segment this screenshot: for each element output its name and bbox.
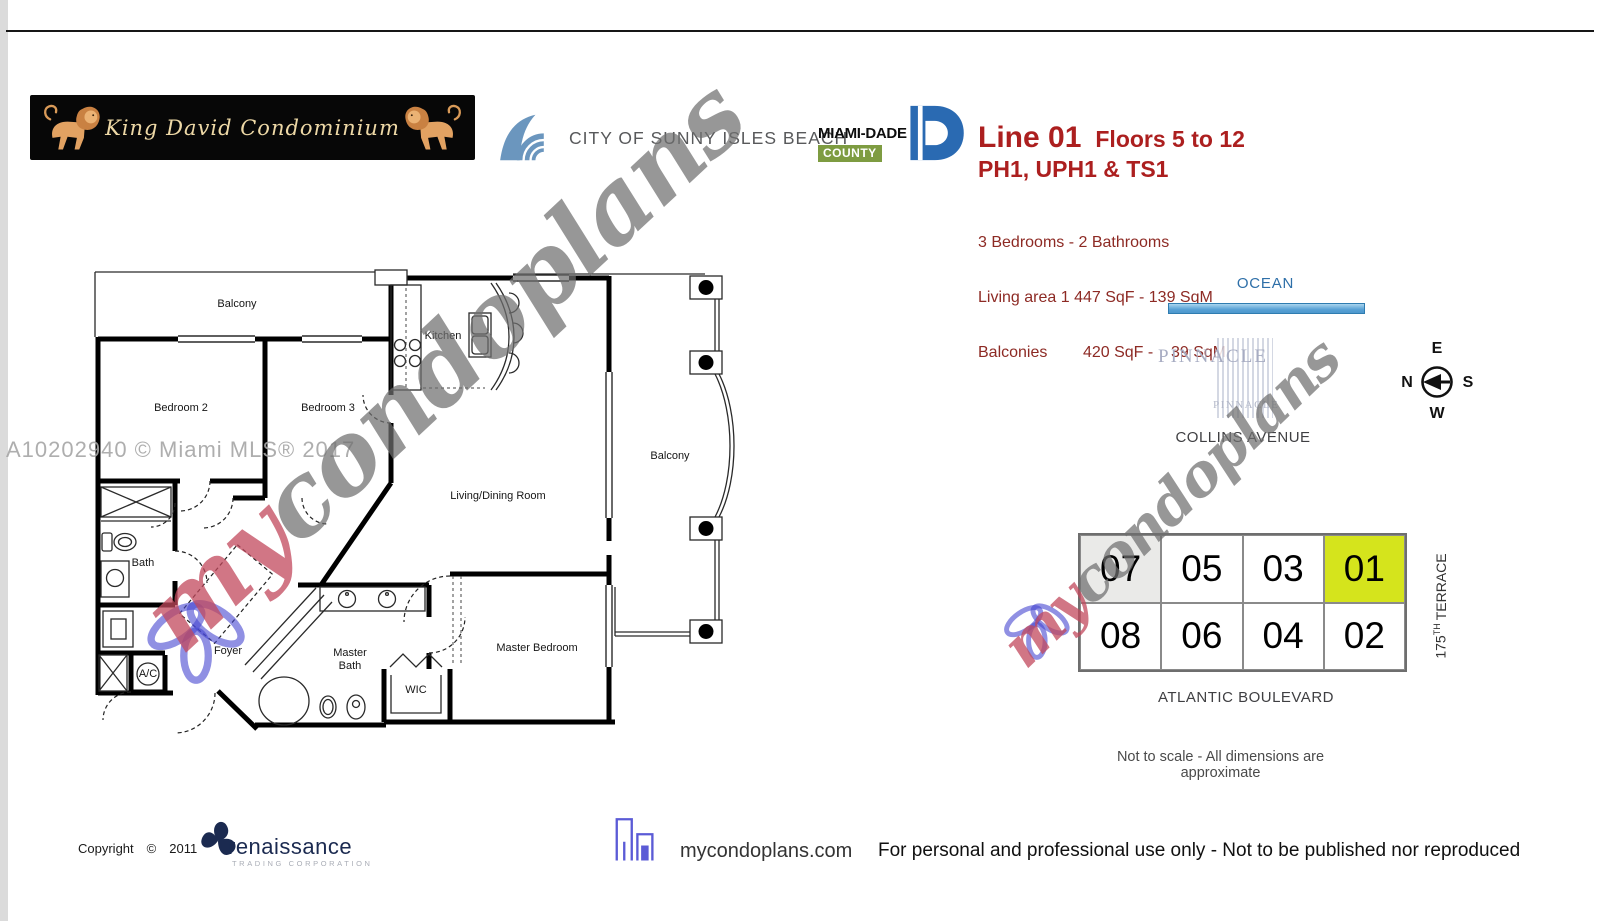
renaissance-subtitle: TRADING CORPORATION <box>232 859 373 868</box>
room-label-master-bath-2: Bath <box>339 660 362 672</box>
compass-icon: E N S W <box>1397 337 1477 422</box>
mycondoplans-site: mycondoplans.com <box>680 840 852 863</box>
room-label-wic: WIC <box>405 684 426 696</box>
unit-cell-06: 06 <box>1161 603 1242 671</box>
unit-cell-01-highlighted: 01 <box>1324 535 1405 603</box>
floors-range: Floors 5 to 12 <box>1095 126 1245 152</box>
room-label-ac: A/C <box>139 668 157 680</box>
copyright-line: Copyright©2011 <box>78 841 210 856</box>
renaissance-name: renaissance <box>228 834 352 860</box>
room-label-balcony-right: Balcony <box>650 450 690 462</box>
room-label-master-bedroom: Master Bedroom <box>496 642 577 654</box>
unit-cell-04: 04 <box>1243 603 1324 671</box>
compass-s: S <box>1463 374 1474 391</box>
room-label-master-bath-1: Master <box>333 647 367 659</box>
street-atlantic-boulevard: ATLANTIC BOULEVARD <box>1156 689 1336 706</box>
room-label-kitchen: Kitchen <box>425 330 462 342</box>
unit-cell-07: 07 <box>1080 535 1161 603</box>
city-logo: CITY OF SUNNY ISLES BEACH <box>497 112 848 164</box>
mls-watermark: A10202940 © Miami MLS® 2017 <box>6 437 355 463</box>
lion-icon <box>42 101 106 155</box>
copyright-year: 2011 <box>169 841 197 856</box>
unit-cell-03: 03 <box>1243 535 1324 603</box>
terrace-name: TERRACE <box>1433 553 1449 620</box>
top-border-line <box>6 30 1594 32</box>
wave-icon <box>497 112 559 164</box>
pinnacle-name: PINNACLE <box>1158 346 1268 368</box>
copyright-label: Copyright <box>78 841 134 856</box>
brand-trefoil-icon <box>996 598 1081 664</box>
city-name: CITY OF SUNNY ISLES BEACH <box>569 128 848 149</box>
room-label-balcony-top: Balcony <box>217 298 257 310</box>
room-label-foyer: Foyer <box>214 645 242 657</box>
county-name: MIAMI-DADE <box>818 125 907 142</box>
unit-cell-05: 05 <box>1161 535 1242 603</box>
floor-plan: Balcony Bedroom 2 Bedroom 3 Kitchen Livi… <box>85 255 745 755</box>
room-label-bath: Bath <box>132 557 155 569</box>
street-collins-avenue: COLLINS AVENUE <box>1158 429 1328 446</box>
lion-icon <box>399 101 463 155</box>
windows <box>178 275 612 667</box>
compass-n: N <box>1401 374 1413 391</box>
pinnacle-logo: PINNACLE PINNACLE <box>1158 338 1273 418</box>
ocean-label: OCEAN <box>1168 275 1363 292</box>
floorplan-sheet: King David Condominium CITY OF SUNNY ISL… <box>0 0 1600 921</box>
compass-w: W <box>1429 405 1445 422</box>
unit-cell-02: 02 <box>1324 603 1405 671</box>
penthouse-line: PH1, UPH1 & TS1 <box>978 156 1278 183</box>
county-logo: MIAMI-DADE COUNTY <box>818 104 967 162</box>
compass-e: E <box>1432 340 1443 357</box>
building-name: King David Condominium <box>105 116 400 140</box>
room-label-bedroom2: Bedroom 2 <box>154 402 208 414</box>
bath-fixtures <box>99 487 171 691</box>
terrace-ordinal: TH <box>1432 623 1442 635</box>
county-sub-label: COUNTY <box>818 145 882 162</box>
ocean-bar <box>1168 303 1365 314</box>
unit-cell-08: 08 <box>1080 603 1161 671</box>
pinnacle-name-small: PINNACLE <box>1213 399 1279 411</box>
line-number: Line 01 <box>978 121 1081 154</box>
bedrooms-bathrooms: 3 Bedrooms - 2 Bathrooms <box>978 234 1278 252</box>
room-label-living: Living/Dining Room <box>450 490 545 502</box>
usage-disclaimer: For personal and professional use only -… <box>878 840 1520 862</box>
miami-dade-d-icon <box>910 104 967 162</box>
scale-note: Not to scale - All dimensions are approx… <box>1078 749 1363 781</box>
mycondoplans-buildings-icon <box>613 813 673 863</box>
street-175th-terrace: 175THTERRACE <box>1432 540 1450 672</box>
unit-grid: 07 05 03 01 08 06 04 02 <box>1078 533 1407 672</box>
building-banner: King David Condominium <box>30 95 475 160</box>
terrace-number: 175 <box>1433 635 1449 658</box>
room-label-bedroom3: Bedroom 3 <box>301 402 355 414</box>
counter-dashes <box>406 288 485 665</box>
copyright-symbol: © <box>147 841 157 856</box>
